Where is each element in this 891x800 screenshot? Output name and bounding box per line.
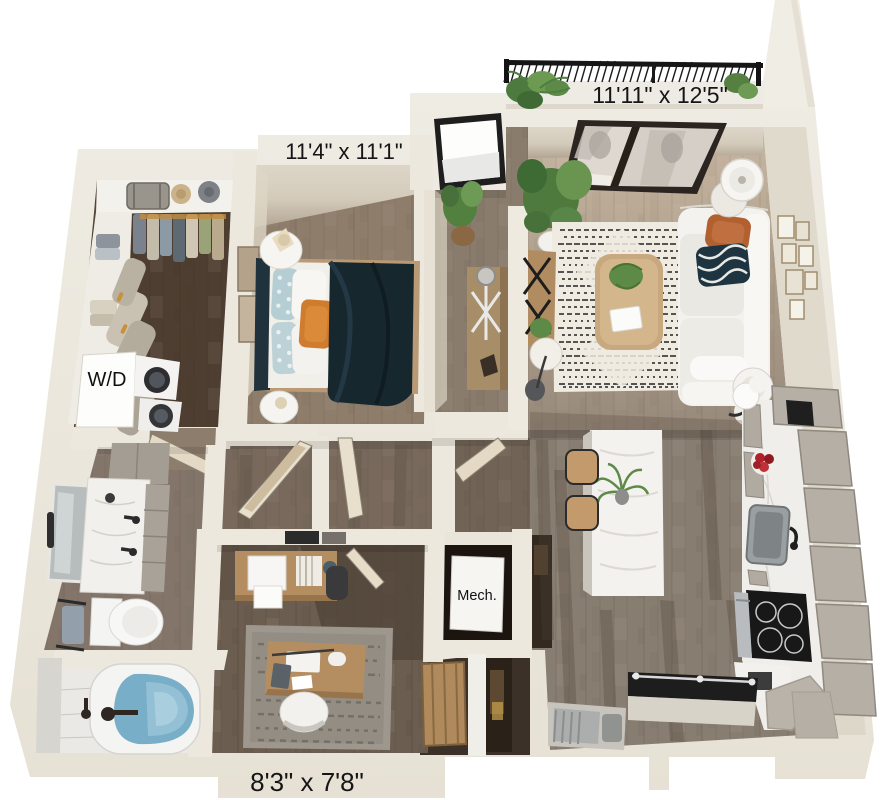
svg-text:Mech.: Mech. <box>457 588 497 604</box>
svg-text:11'11" x 12'5": 11'11" x 12'5" <box>592 82 728 108</box>
svg-text:11'4" x 11'1": 11'4" x 11'1" <box>285 139 402 164</box>
svg-text:8'3" x 7'8": 8'3" x 7'8" <box>250 767 364 797</box>
svg-text:W/D: W/D <box>88 369 127 391</box>
